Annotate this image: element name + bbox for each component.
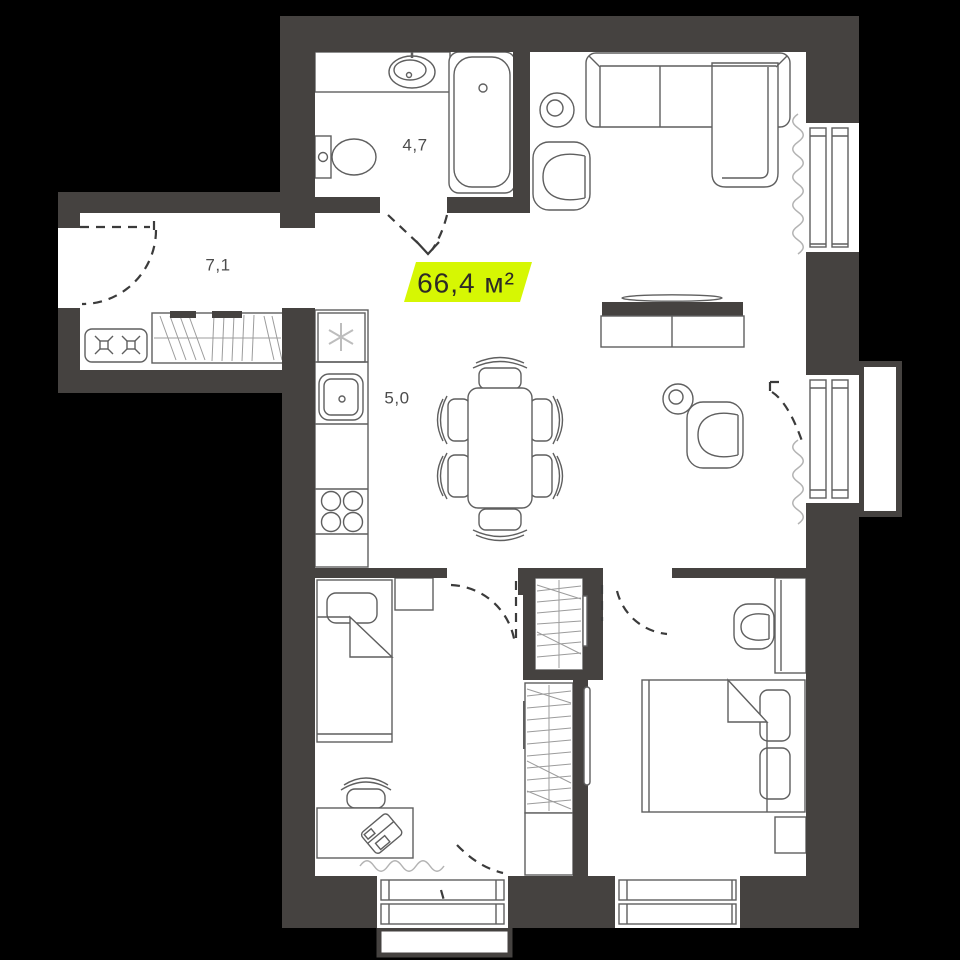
wall [58,213,80,228]
wall [523,578,535,670]
wall [508,876,615,928]
armchair [533,142,590,210]
balcony [861,364,899,514]
wardrobe-upper [535,578,583,670]
dressing-table [775,578,806,673]
nightstand [775,817,806,853]
wall [740,876,859,928]
stool [734,604,774,649]
toilet [315,136,376,178]
cabinet [525,813,573,875]
floor-plan-svg: 4,7 7,1 5,0 66,4 м² [0,0,960,960]
wall [212,311,242,318]
wall [280,16,859,52]
wall [282,876,377,928]
wall [58,370,283,393]
wall [672,568,806,578]
wall [806,503,859,876]
tv-stand [601,295,744,347]
bathroom-area-label: 4,7 [402,136,427,155]
total-area-value: 66,4 м² [417,268,515,299]
kitchen [315,310,368,567]
desk-chair [341,778,391,808]
mirror [584,687,590,785]
wardrobe-lower [525,683,573,813]
burner-icon [127,341,135,349]
hallway-area-label: 7,1 [205,256,230,275]
armchair [687,402,743,468]
bathtub [449,52,515,193]
wall [806,252,859,375]
wall [447,197,530,213]
window [806,375,859,503]
window [615,876,740,928]
stove [85,329,147,362]
wall [280,197,380,213]
dining-table [468,388,532,508]
wall [513,52,530,197]
wall [282,308,315,876]
kitchen-area-label: 5,0 [384,389,409,408]
nightstand [395,578,433,610]
wall [806,52,859,123]
double-bed [642,680,805,812]
hall-closet [152,313,283,363]
wall [523,670,587,680]
window [806,123,859,252]
wall [58,192,315,213]
wall [315,568,447,578]
burner-icon [100,341,108,349]
balcony [379,929,510,955]
vanity-counter [315,52,450,92]
single-bed [317,580,392,742]
sliding-door [583,596,587,646]
floor-plan-canvas: 4,7 7,1 5,0 66,4 м² [0,0,960,960]
total-area-badge: 66,4 м² [404,262,532,302]
wall [170,311,196,318]
window [377,876,508,928]
